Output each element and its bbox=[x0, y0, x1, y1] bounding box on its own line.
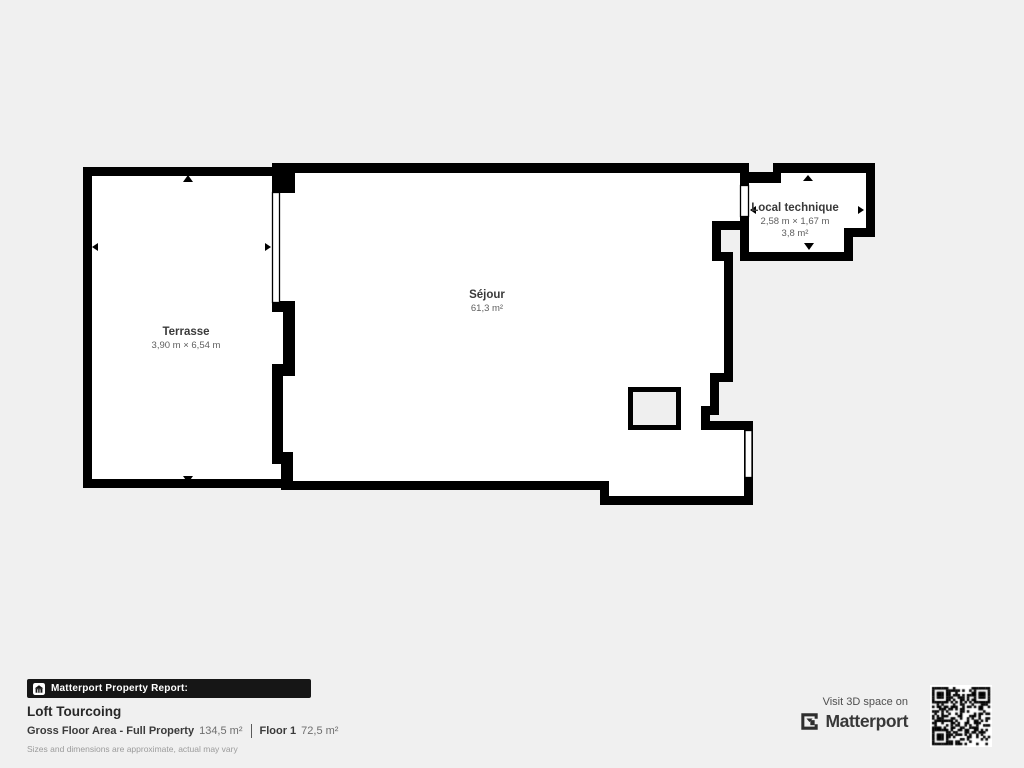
matterport-logo: Matterport bbox=[799, 711, 908, 732]
local-technique-label: Local technique bbox=[751, 202, 839, 214]
floor-label: Floor 1 bbox=[260, 725, 297, 737]
property-title: Loft Tourcoing bbox=[27, 704, 121, 719]
sejour-area: 61,3 m² bbox=[471, 303, 503, 314]
matterport-m-icon bbox=[799, 711, 820, 732]
terrasse-dims: 3,90 m × 6,54 m bbox=[152, 340, 221, 351]
disclaimer-text: Sizes and dimensions are approximate, ac… bbox=[27, 744, 238, 754]
local-technique-area: 3,8 m² bbox=[782, 228, 809, 239]
gfa-label: Gross Floor Area - Full Property bbox=[27, 725, 194, 737]
door-local-technique bbox=[741, 186, 749, 217]
window-terrasse-sejour bbox=[273, 193, 280, 303]
floor-value: 72,5 m² bbox=[301, 725, 338, 737]
stats-separator bbox=[251, 724, 252, 738]
matterport-wordmark: Matterport bbox=[825, 711, 908, 732]
terrasse-label: Terrasse bbox=[162, 326, 209, 338]
floor-plan: Terrasse 3,90 m × 6,54 m Séjour 61,3 m² … bbox=[0, 0, 1024, 768]
visit-3d-text: Visit 3D space on bbox=[823, 696, 908, 708]
report-bar-label: Matterport Property Report: bbox=[51, 683, 188, 694]
area-stats: Gross Floor Area - Full Property 134,5 m… bbox=[27, 724, 338, 738]
qr-code bbox=[930, 685, 992, 747]
property-report-page: Terrasse 3,90 m × 6,54 m Séjour 61,3 m² … bbox=[0, 0, 1024, 768]
room-sejour bbox=[281, 167, 749, 500]
report-bar: Matterport Property Report: bbox=[27, 679, 311, 698]
shaft-column bbox=[628, 387, 681, 430]
sejour-label: Séjour bbox=[469, 289, 505, 301]
gfa-value: 134,5 m² bbox=[199, 725, 242, 737]
window-sejour-right bbox=[745, 431, 752, 478]
local-technique-dims: 2,58 m × 1,67 m bbox=[761, 216, 830, 227]
house-icon bbox=[33, 683, 45, 695]
